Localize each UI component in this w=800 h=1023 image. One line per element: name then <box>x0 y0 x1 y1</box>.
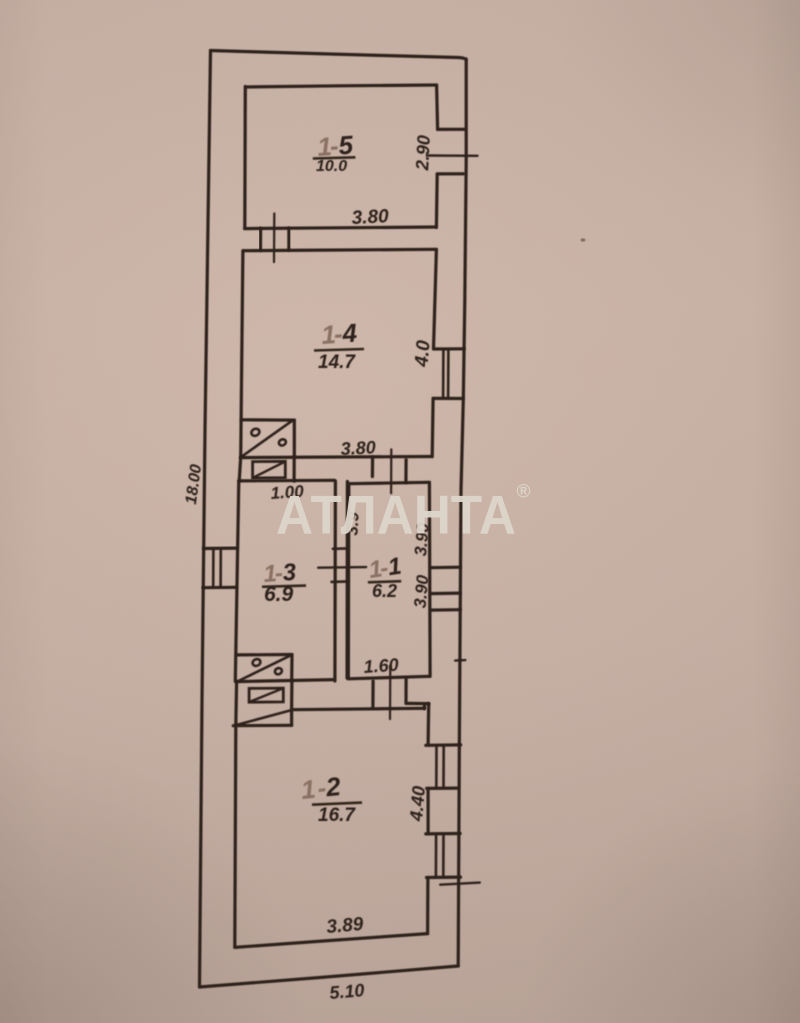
svg-text:®: ® <box>517 482 531 503</box>
svg-text:3.90: 3.90 <box>411 574 433 609</box>
svg-text:2.90: 2.90 <box>412 135 434 172</box>
svg-text:6.2: 6.2 <box>372 581 397 601</box>
svg-text:14.7: 14.7 <box>318 352 356 373</box>
svg-text:3.80: 3.80 <box>351 206 389 229</box>
svg-text:10.0: 10.0 <box>316 158 347 175</box>
svg-text:1.60: 1.60 <box>363 655 399 677</box>
svg-text:1-1: 1-1 <box>367 553 403 584</box>
svg-text:6.9: 6.9 <box>264 583 294 606</box>
svg-text:1-4: 1-4 <box>320 318 358 350</box>
svg-text:АТЛАНТА: АТЛАНТА <box>276 484 516 546</box>
svg-text:4.40: 4.40 <box>406 785 429 823</box>
svg-text:16.7: 16.7 <box>318 805 356 826</box>
svg-text:5.10: 5.10 <box>329 980 366 1003</box>
svg-text:1-2: 1-2 <box>299 771 342 805</box>
svg-text:3.80: 3.80 <box>340 437 376 459</box>
svg-text:3.89: 3.89 <box>326 914 365 938</box>
svg-text:4.0: 4.0 <box>411 339 434 369</box>
